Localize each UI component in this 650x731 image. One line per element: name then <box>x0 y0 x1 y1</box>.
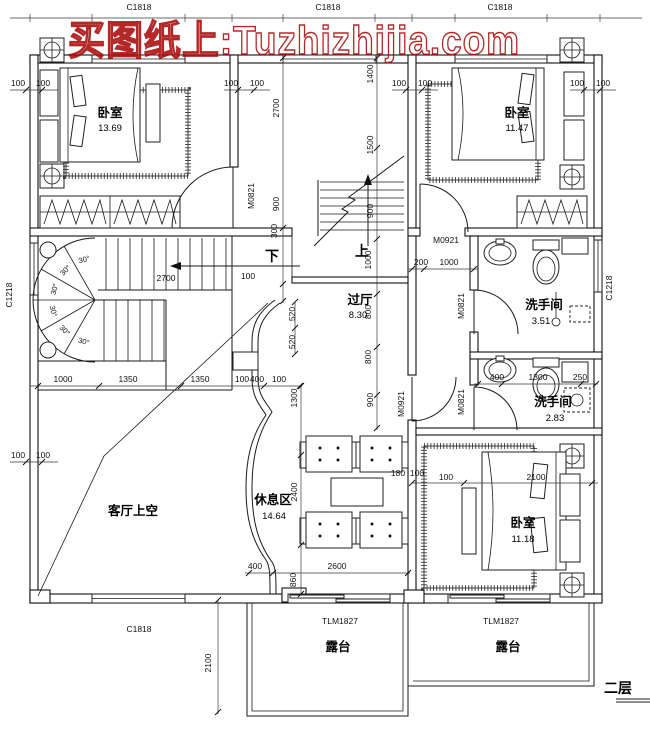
up-arrowhead <box>364 174 372 185</box>
room-label-hall: 过厅 <box>347 292 373 307</box>
svg-text:100: 100 <box>224 78 238 88</box>
svg-text:100: 100 <box>36 450 50 460</box>
svg-text:100: 100 <box>235 374 249 384</box>
svg-text:1500: 1500 <box>365 135 375 154</box>
svg-text:1400: 1400 <box>365 64 375 83</box>
door-tag: M0921 <box>433 235 459 245</box>
window-tag: C1218 <box>604 275 614 300</box>
armchair <box>356 436 408 472</box>
room-label-bath-upper: 洗手间 <box>525 297 563 312</box>
door-tag: TLM1827 <box>322 616 358 626</box>
svg-text:100: 100 <box>418 78 432 88</box>
svg-text:300: 300 <box>269 224 279 238</box>
svg-text:900: 900 <box>365 393 375 407</box>
nightstand <box>560 520 580 562</box>
svg-text:1350: 1350 <box>191 374 210 384</box>
svg-text:900: 900 <box>271 197 281 211</box>
bed <box>452 68 544 160</box>
room-label-bedroom-tl: 卧室 <box>97 105 123 120</box>
svg-text:520: 520 <box>287 307 297 321</box>
room-label-bath-lower: 洗手间 <box>534 394 572 409</box>
armchair <box>300 436 358 472</box>
window-tag: C1818 <box>487 2 512 12</box>
door-bedroom-tr <box>420 184 468 232</box>
partition-pier <box>233 352 258 370</box>
door-bedroom-br <box>412 377 456 421</box>
svg-text:100: 100 <box>11 450 25 460</box>
svg-text:100: 100 <box>11 78 25 88</box>
column-symbol <box>40 38 64 62</box>
door-bath-lower <box>474 387 517 430</box>
svg-text:900: 900 <box>365 204 375 218</box>
floor-plan-page: 30° 30° 30° 30° 30° 30° 下 上 <box>0 0 650 731</box>
stair-angle-label: 30° <box>77 254 90 266</box>
stair-angle-label: 30° <box>57 323 71 337</box>
svg-text:100: 100 <box>410 468 424 478</box>
svg-text:180: 180 <box>391 468 405 478</box>
svg-text:200: 200 <box>414 257 428 267</box>
down-arrowhead <box>170 262 181 270</box>
svg-text:100: 100 <box>439 472 453 482</box>
void-diagonal-line <box>38 303 268 596</box>
door-tag: M0921 <box>396 391 406 417</box>
window-tag: C1218 <box>4 282 14 307</box>
column-symbol <box>560 165 584 189</box>
door-tag: M0821 <box>456 293 466 319</box>
watermark-text: 买图纸上:Tuzhizhijia.com <box>68 19 520 63</box>
column-symbol <box>560 573 584 597</box>
svg-text:250: 250 <box>573 372 587 382</box>
entry-stair: 上 <box>314 156 404 259</box>
svg-text:2100: 2100 <box>203 653 213 672</box>
floor-tag: 二层 <box>604 680 650 702</box>
room-area-bedroom-tr: 11.47 <box>505 123 528 134</box>
room-label-terrace-right: 露台 <box>495 639 520 654</box>
window-tag: C1818 <box>126 2 151 12</box>
svg-text:2100: 2100 <box>527 472 546 482</box>
bed <box>482 452 566 570</box>
svg-text:860: 860 <box>288 573 298 587</box>
door-tag: TLM1827 <box>483 616 519 626</box>
svg-text:400: 400 <box>250 374 264 384</box>
stair-down-label: 下 <box>265 248 279 264</box>
sliding-door-tlm1827-right <box>448 594 550 603</box>
nightstand <box>40 120 58 162</box>
coffee-table <box>331 478 383 506</box>
room-area-hall: 8.30 <box>349 310 368 321</box>
svg-text:1300: 1300 <box>289 388 299 407</box>
floor-plan-drawing: 30° 30° 30° 30° 30° 30° 下 上 <box>0 0 650 731</box>
room-area-bedroom-tl: 13.69 <box>98 123 122 134</box>
bedside-bench <box>462 488 476 554</box>
room-area-lounge: 14.64 <box>262 511 286 522</box>
toilet <box>533 240 559 284</box>
stair-scallop <box>40 342 56 358</box>
svg-text:1300: 1300 <box>529 372 548 382</box>
nightstand <box>560 474 580 516</box>
svg-text:100: 100 <box>596 78 610 88</box>
room-label-living-void: 客厅上空 <box>107 503 158 518</box>
window-c1218-right <box>594 240 602 292</box>
sliding-door-tlm1827-left <box>288 594 390 603</box>
armchair <box>300 512 358 548</box>
stair-break-line <box>314 156 404 246</box>
sink <box>484 239 516 265</box>
spiral-stair: 30° 30° 30° 30° 30° 30° 下 <box>33 236 300 390</box>
svg-text:100: 100 <box>272 374 286 384</box>
column-symbol <box>40 164 64 188</box>
door-bath-upper <box>474 290 518 334</box>
svg-text:2700: 2700 <box>157 273 176 283</box>
svg-text:400: 400 <box>248 561 262 571</box>
column-symbol <box>560 38 584 62</box>
svg-text:400: 400 <box>490 372 504 382</box>
room-area-bedroom-br: 11.18 <box>511 534 534 545</box>
wardrobe <box>40 196 180 228</box>
stair-angle-label: 30° <box>58 263 72 277</box>
stair-angle-label: 30° <box>48 304 60 317</box>
stair-angle-label: 30° <box>49 282 61 295</box>
room-label-lounge: 休息区 <box>253 492 292 507</box>
svg-text:2700: 2700 <box>271 98 281 117</box>
svg-text:1000: 1000 <box>363 250 373 269</box>
bath-shelf <box>562 238 588 254</box>
svg-text:100: 100 <box>250 78 264 88</box>
svg-text:100: 100 <box>36 78 50 88</box>
svg-text:100: 100 <box>392 78 406 88</box>
room-label-terrace-left: 露台 <box>325 639 350 654</box>
door-tag: M0821 <box>246 183 256 209</box>
svg-text:800: 800 <box>363 350 373 364</box>
window-c1818-bottom <box>92 594 185 603</box>
svg-text:2600: 2600 <box>328 561 347 571</box>
stair-angle-label: 30° <box>77 336 90 348</box>
svg-text:520: 520 <box>287 335 297 349</box>
room-label-bedroom-tr: 卧室 <box>504 105 530 120</box>
window-tag: C1818 <box>315 2 340 12</box>
room-area-bath-lower: 2.83 <box>546 413 565 424</box>
svg-text:100: 100 <box>570 78 584 88</box>
svg-text:1000: 1000 <box>440 257 459 267</box>
wardrobe <box>517 196 587 228</box>
terraces <box>247 603 594 716</box>
window-tag: C1818 <box>126 624 151 634</box>
svg-text:1350: 1350 <box>119 374 138 384</box>
bedside-bench <box>146 84 160 142</box>
room-label-bedroom-br: 卧室 <box>510 515 536 530</box>
svg-text:1000: 1000 <box>54 374 73 384</box>
nightstand <box>564 120 584 160</box>
curved-partition <box>233 300 280 594</box>
stair-scallop <box>40 242 56 258</box>
nightstand <box>40 70 58 116</box>
floor-label: 二层 <box>604 680 632 696</box>
armchair <box>356 512 408 548</box>
door-tag: M0821 <box>456 389 466 415</box>
room-area-bath-upper: 3.51 <box>532 316 551 327</box>
svg-text:100: 100 <box>241 271 255 281</box>
